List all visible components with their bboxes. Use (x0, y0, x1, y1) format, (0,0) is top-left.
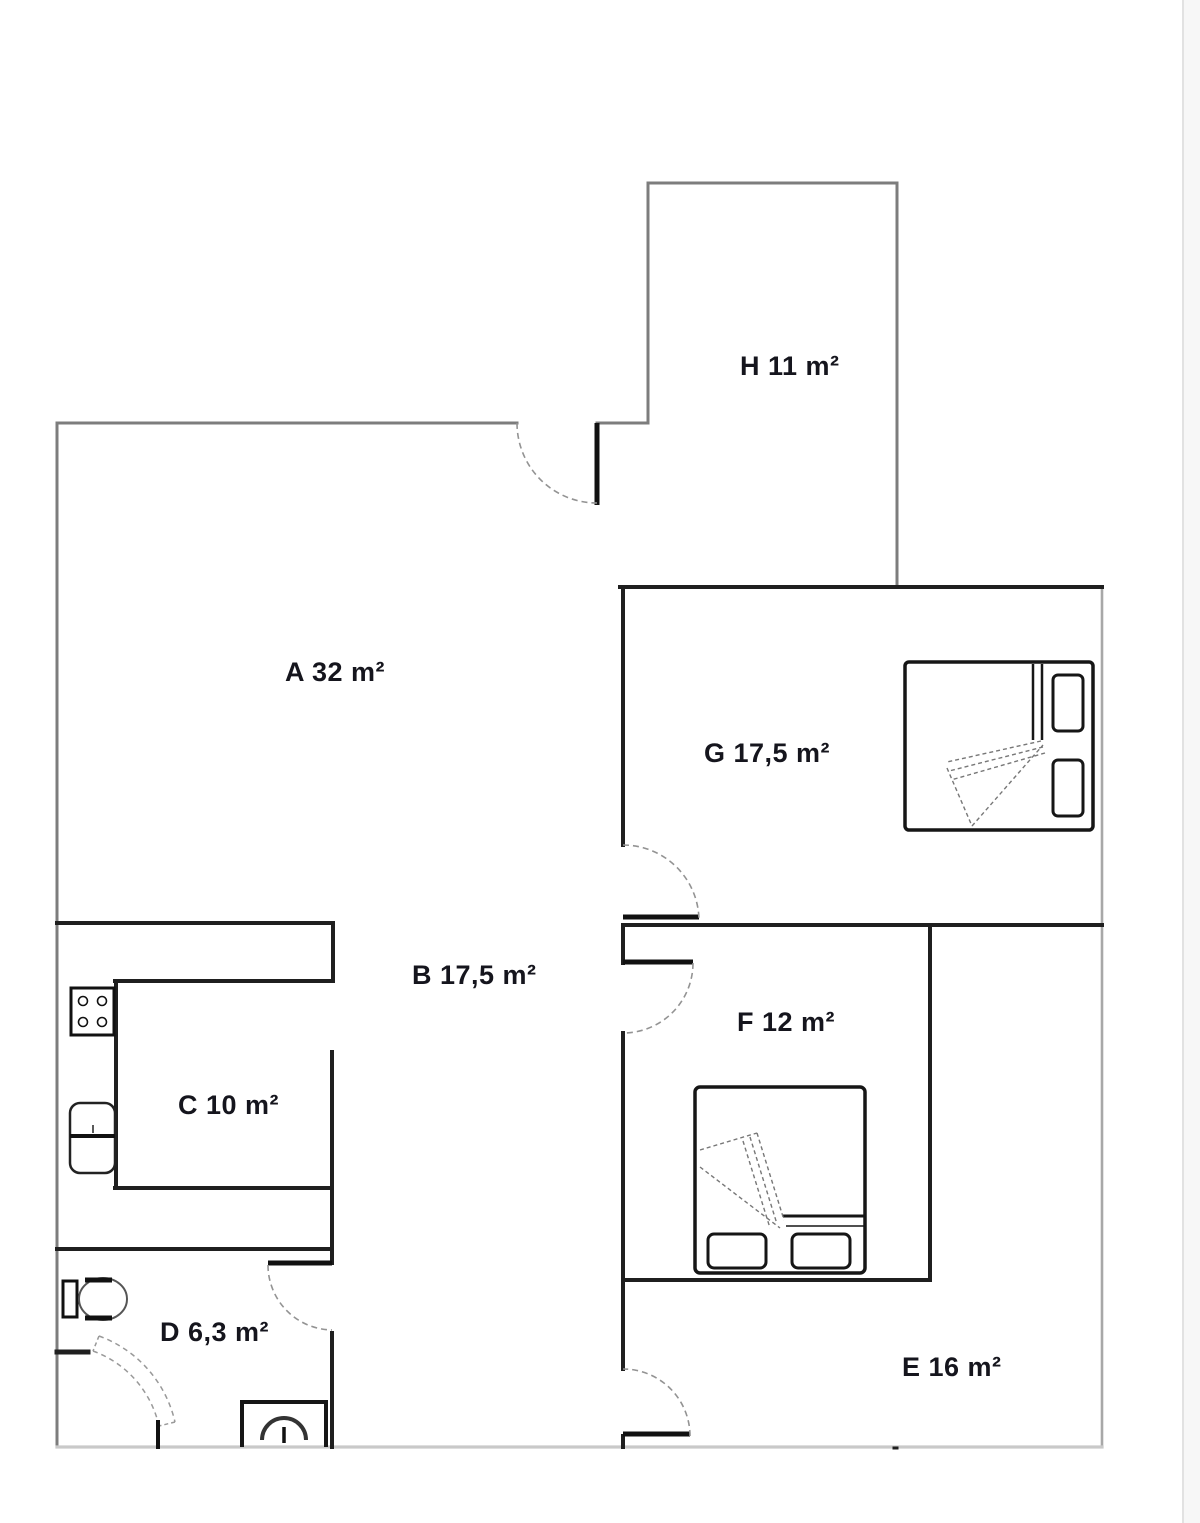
stove-body (71, 988, 114, 1035)
room-label-c: C 10 m² (178, 1090, 279, 1120)
door-d-entry-cap-top (93, 1336, 99, 1351)
stove-icon (71, 988, 114, 1035)
room-label-a: A 32 m² (285, 657, 385, 687)
door-d-entry-cap-bottom (159, 1422, 175, 1426)
bed-f-blanket-fold (700, 1133, 784, 1228)
door-a-swing-arc-icon (517, 423, 597, 503)
room-label-b: B 17,5 m² (412, 960, 537, 990)
door-a (517, 423, 597, 505)
door-f (623, 962, 693, 1033)
room-label-h: H 11 m² (740, 351, 840, 381)
room-labels: A 32 m² B 17,5 m² C 10 m² D 6,3 m² E 16 … (160, 351, 1002, 1382)
toilet-bowl (79, 1278, 127, 1320)
door-d-swing-arc-icon (268, 1265, 332, 1330)
door-e-swing-arc-icon (623, 1369, 690, 1436)
room-label-d: D 6,3 m² (160, 1317, 269, 1347)
room-label-g: G 17,5 m² (704, 738, 830, 768)
shower-icon (242, 1402, 326, 1447)
doors (93, 423, 699, 1449)
room-label-f: F 12 m² (737, 1007, 835, 1037)
door-e (623, 1369, 690, 1436)
door-g (623, 845, 699, 921)
bed-g-blanket-fold (947, 741, 1045, 826)
door-g-swing-arc-icon (623, 845, 699, 921)
stove-burner-4 (98, 1018, 107, 1027)
door-f-swing-arc-icon (623, 963, 693, 1033)
bed-g-pillow-2 (1053, 760, 1083, 816)
double-bed-icon-g (905, 662, 1093, 830)
door-d (268, 1263, 332, 1330)
sink-icon (70, 1103, 115, 1173)
bed-f-pillow-1 (708, 1234, 766, 1268)
bed-g-frame (905, 662, 1093, 830)
exterior-walls (57, 183, 1102, 1447)
stove-burner-3 (79, 1018, 88, 1027)
toilet-tank (63, 1281, 77, 1317)
door-d-entry-swing (93, 1336, 175, 1449)
door-d-entry-arc-inner-icon (93, 1351, 159, 1426)
page-margin-strip (1183, 0, 1200, 1523)
floor-plan-drawing: A 32 m² B 17,5 m² C 10 m² D 6,3 m² E 16 … (0, 0, 1200, 1523)
floor-plan-page: A 32 m² B 17,5 m² C 10 m² D 6,3 m² E 16 … (0, 0, 1200, 1523)
bed-g-pillow-1 (1053, 675, 1083, 731)
double-bed-icon-f (695, 1087, 865, 1273)
bed-f-pillow-2 (792, 1234, 850, 1268)
room-label-e: E 16 m² (902, 1352, 1002, 1382)
stove-burner-2 (98, 997, 107, 1006)
door-d-entry-arc-outer-icon (99, 1336, 175, 1422)
stove-burner-1 (79, 997, 88, 1006)
bed-f-frame (695, 1087, 865, 1273)
wall-room-h (648, 183, 897, 587)
toilet-icon (63, 1278, 127, 1320)
